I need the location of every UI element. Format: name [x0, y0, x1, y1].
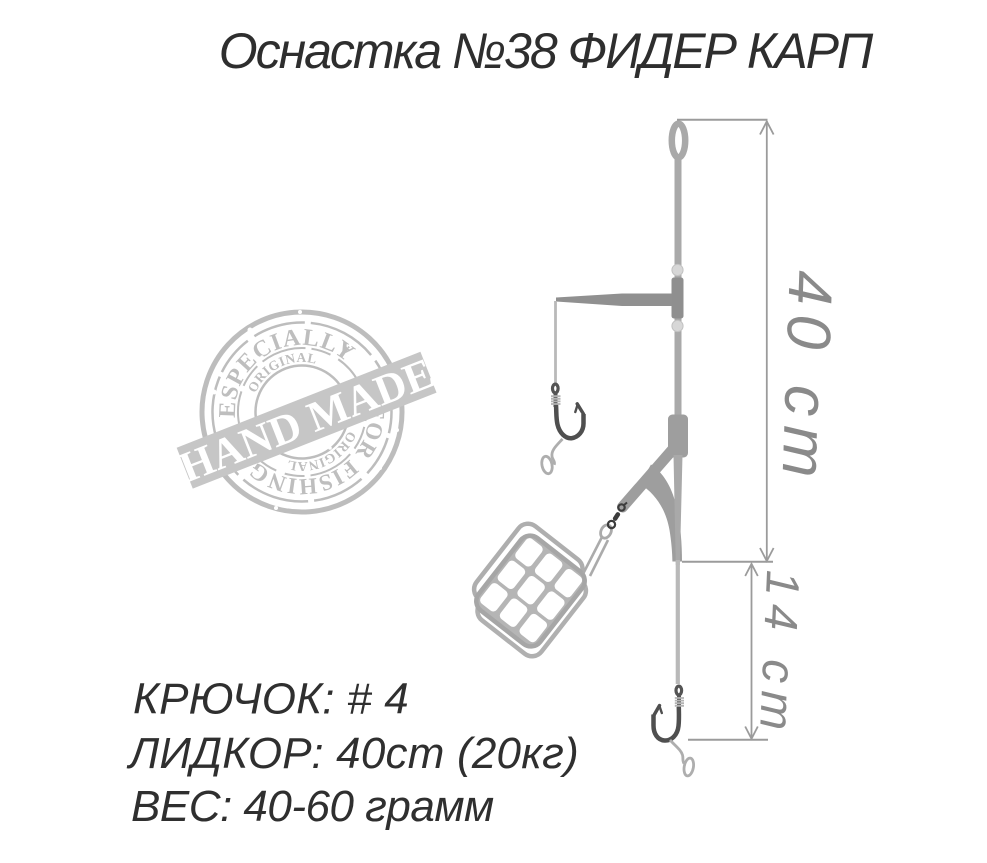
svg-text:Оснастка №38 ФИДЕР КАРП: Оснастка №38 ФИДЕР КАРП — [219, 23, 874, 79]
svg-text:ЛИДКОР: 40cm (20кг): ЛИДКОР: 40cm (20кг) — [126, 729, 579, 778]
svg-text:40 cm: 40 cm — [768, 269, 845, 488]
svg-text:КРЮЧОК: # 4: КРЮЧОК: # 4 — [133, 675, 409, 724]
svg-text:ВЕС: 40-60 грамм: ВЕС: 40-60 грамм — [131, 782, 494, 831]
svg-text:14 cm: 14 cm — [750, 569, 810, 739]
